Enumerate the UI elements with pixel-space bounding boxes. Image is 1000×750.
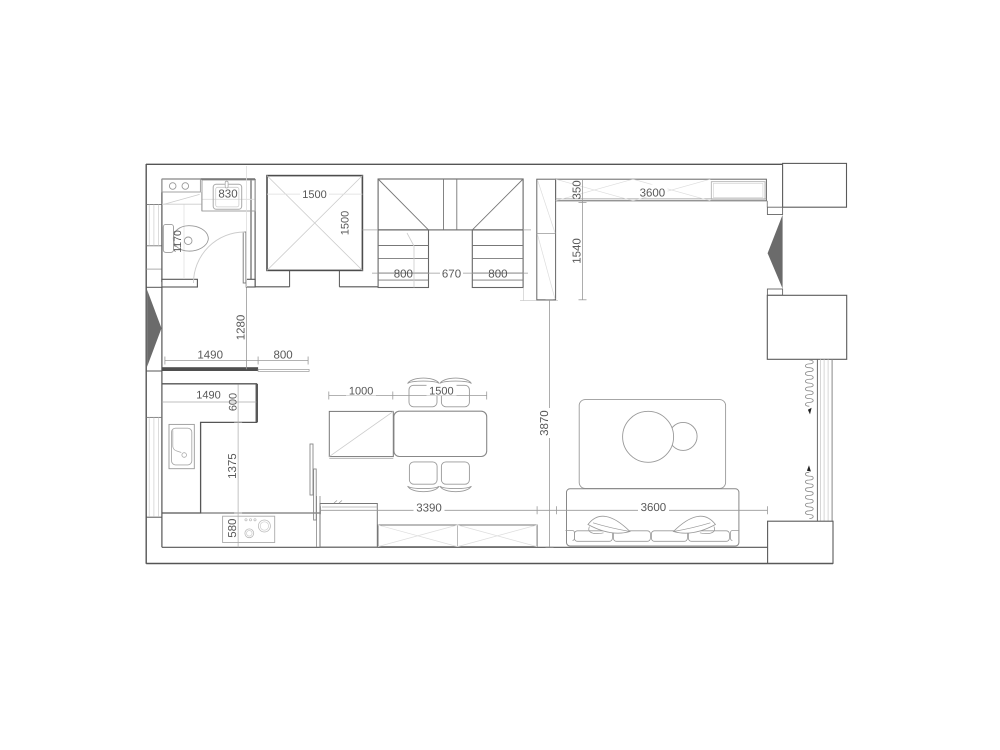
svg-text:3870: 3870 <box>539 410 551 436</box>
svg-text:800: 800 <box>394 268 413 280</box>
svg-text:830: 830 <box>218 189 237 201</box>
svg-text:800: 800 <box>488 268 507 280</box>
svg-text:1170: 1170 <box>172 230 184 253</box>
svg-text:3600: 3600 <box>640 188 666 200</box>
svg-text:1490: 1490 <box>197 350 223 362</box>
svg-text:1375: 1375 <box>227 453 239 479</box>
svg-text:1280: 1280 <box>236 315 248 341</box>
svg-text:3390: 3390 <box>416 503 442 515</box>
svg-text:600: 600 <box>227 393 239 411</box>
svg-text:1490: 1490 <box>196 389 220 401</box>
svg-text:1500: 1500 <box>302 189 326 201</box>
svg-text:670: 670 <box>442 268 461 280</box>
svg-text:3600: 3600 <box>641 502 667 514</box>
svg-text:800: 800 <box>274 350 293 362</box>
svg-text:1000: 1000 <box>349 385 373 397</box>
svg-text:1540: 1540 <box>571 238 583 264</box>
svg-text:1500: 1500 <box>339 211 351 235</box>
svg-text:350: 350 <box>571 180 583 199</box>
svg-text:580: 580 <box>227 519 239 538</box>
svg-text:1500: 1500 <box>429 385 453 397</box>
